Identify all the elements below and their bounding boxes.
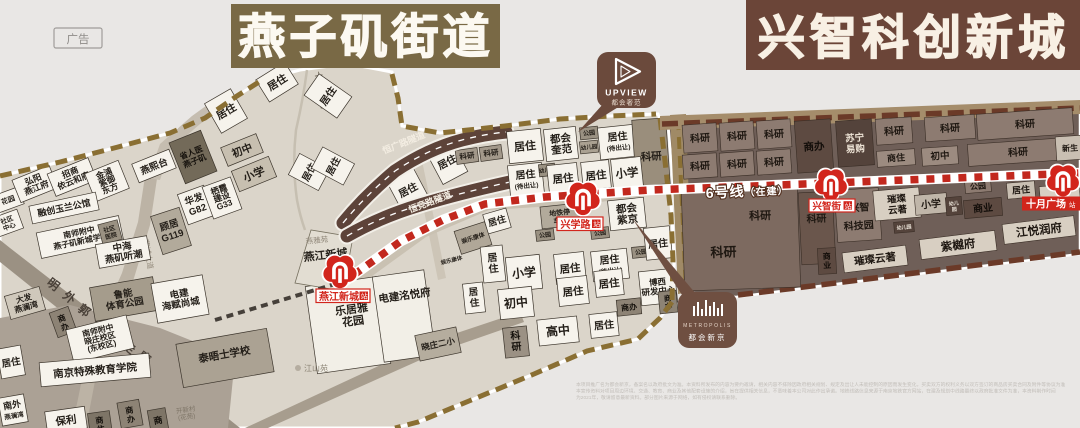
svg-text:居住(待出让): 居住(待出让) <box>605 129 631 153</box>
svg-text:居住: 居住 <box>1012 183 1031 196</box>
svg-text:本项目推广名为都会新京，备案名以政府批文为准。本资料所发布的: 本项目推广名为都会新京，备案名以政府批文为准。本资料所发布的内容为要约邀请，相关… <box>576 381 1065 388</box>
svg-text:十月广场: 十月广场 <box>1026 198 1066 211</box>
svg-text:广告: 广告 <box>67 33 90 46</box>
svg-text:商办: 商办 <box>621 301 638 313</box>
svg-text:商住: 商住 <box>887 151 906 163</box>
svg-text:站: 站 <box>593 220 600 229</box>
svg-text:商办: 商办 <box>803 139 825 153</box>
svg-text:高中: 高中 <box>545 322 570 339</box>
svg-text:科研: 科研 <box>806 211 827 225</box>
svg-text:METROPOLIS: METROPOLIS <box>683 323 732 329</box>
svg-text:璀璨云著: 璀璨云著 <box>887 192 908 217</box>
svg-text:居住: 居住 <box>585 168 608 183</box>
svg-text:都会奎范: 都会奎范 <box>548 131 573 157</box>
svg-text:居住: 居住 <box>598 276 621 291</box>
svg-text:居住(待出让): 居住(待出让) <box>513 167 539 191</box>
svg-text:UPVIEW: UPVIEW <box>605 88 648 98</box>
svg-text:科研: 科研 <box>749 208 771 223</box>
svg-text:兴智街: 兴智街 <box>813 200 842 212</box>
svg-text:初中: 初中 <box>930 149 950 162</box>
svg-text:居住: 居住 <box>562 284 585 299</box>
svg-text:为2021年，敬请留意最新资料。部分图片来源于网络，如有侵权: 为2021年，敬请留意最新资料。部分图片来源于网络，如有侵权请联系删除。 <box>576 394 740 401</box>
svg-text:站: 站 <box>845 201 852 210</box>
svg-text:兴智科创新城: 兴智科创新城 <box>758 11 1070 64</box>
svg-text:幼儿园: 幼儿园 <box>896 223 912 231</box>
svg-text:站: 站 <box>361 292 368 301</box>
svg-text:兴学路: 兴学路 <box>561 218 592 231</box>
svg-text:商: 商 <box>153 414 164 426</box>
svg-text:初中: 初中 <box>503 294 528 311</box>
svg-text:科研: 科研 <box>710 244 737 260</box>
svg-text:商业: 商业 <box>822 251 831 270</box>
svg-text:新生: 新生 <box>1062 142 1079 153</box>
svg-text:本宣传资料对项目周边环境、交通、教育、商业及其他配套设施的介: 本宣传资料对项目周边环境、交通、教育、商业及其他配套设施的介绍，旨在提供相关信息… <box>576 388 1056 395</box>
svg-text:江山苑: 江山苑 <box>304 363 328 373</box>
svg-text:居住: 居住 <box>559 261 582 276</box>
svg-text:站: 站 <box>1069 200 1076 209</box>
svg-text:燕子矶街道: 燕子矶街道 <box>239 10 494 63</box>
svg-text:燕江新城: 燕江新城 <box>319 290 359 303</box>
svg-text:都会新京: 都会新京 <box>689 332 727 342</box>
svg-text:公园: 公园 <box>970 181 987 191</box>
svg-text:苏宁易购: 苏宁易购 <box>845 131 866 155</box>
svg-text:科研: 科研 <box>640 149 662 163</box>
svg-text:小学: 小学 <box>511 264 536 281</box>
svg-text:都会奢范: 都会奢范 <box>612 98 642 107</box>
